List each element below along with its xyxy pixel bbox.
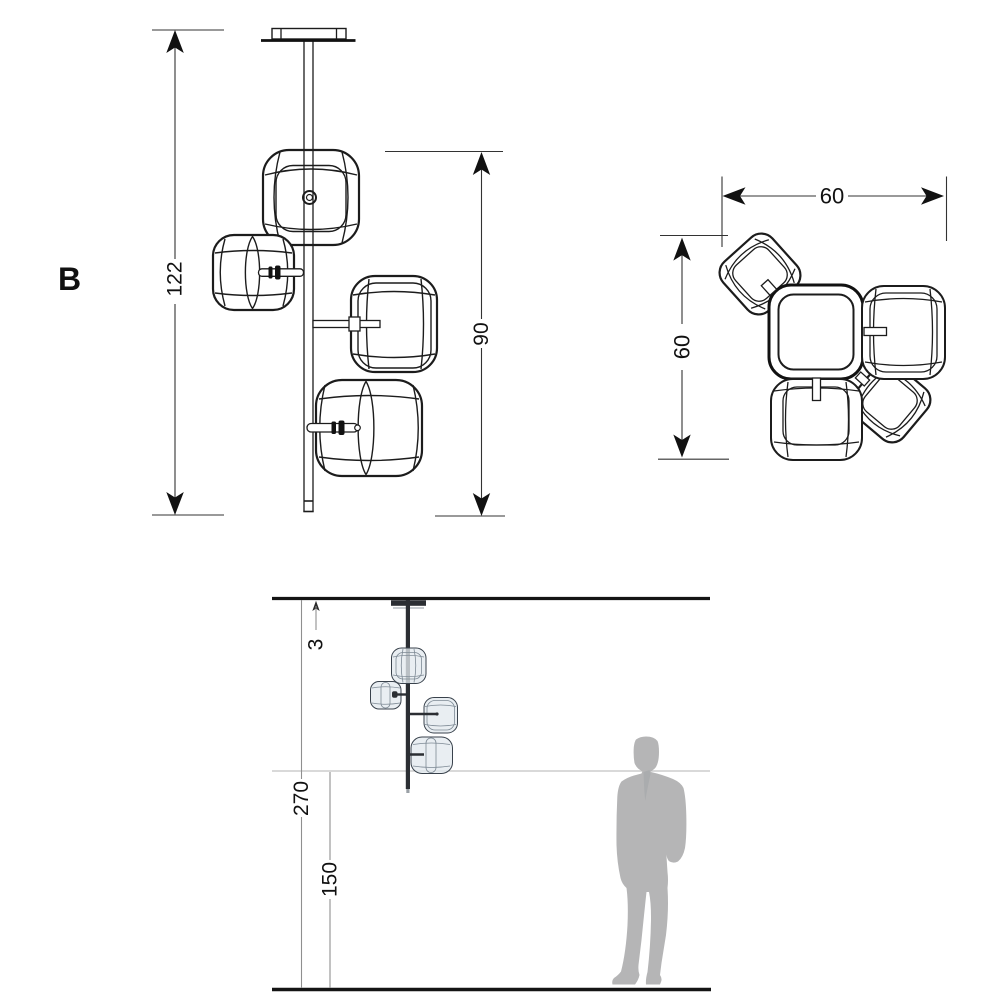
svg-text:270: 270 [290, 781, 313, 816]
svg-text:90: 90 [470, 322, 493, 345]
svg-text:122: 122 [164, 261, 187, 296]
svg-text:3: 3 [305, 639, 328, 651]
svg-text:60: 60 [820, 184, 844, 209]
svg-text:150: 150 [319, 862, 342, 897]
svg-text:60: 60 [670, 335, 695, 359]
svg-text:B: B [58, 261, 81, 297]
